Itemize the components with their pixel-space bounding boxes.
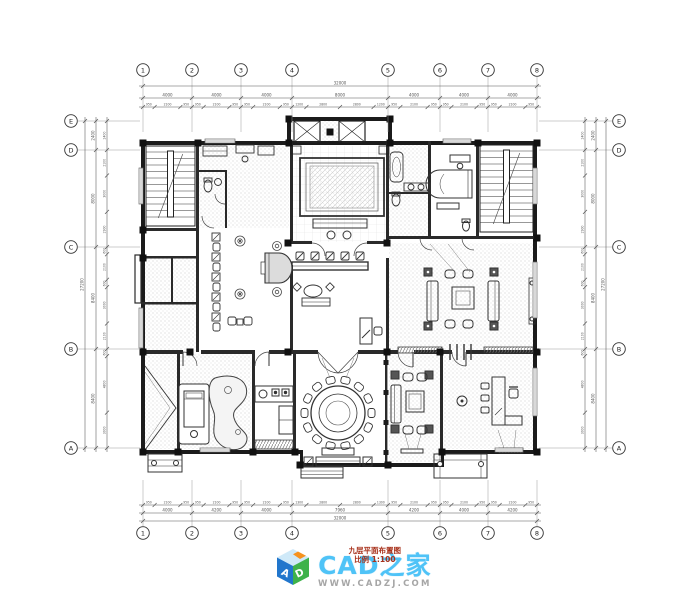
dim-text: 3000 bbox=[102, 301, 106, 309]
grid-bubble-label: D bbox=[616, 146, 621, 154]
cadzj-logo[interactable]: A D 九层平面布置图 比例 1:100 CAD之家 WWW.CADZJ.COM bbox=[274, 547, 432, 589]
dim-text: 950 bbox=[479, 102, 485, 106]
column bbox=[387, 140, 394, 147]
dim-text: 2100 bbox=[580, 159, 584, 167]
dim-text: 2100 bbox=[164, 500, 172, 504]
dim-text: 4000 bbox=[162, 507, 173, 512]
dim-text: 950 bbox=[232, 500, 238, 504]
dim-text: 950 bbox=[283, 102, 289, 106]
kitchen bbox=[255, 386, 293, 449]
banquet-chair bbox=[301, 409, 308, 418]
dim-text: 4000 bbox=[261, 92, 272, 97]
column bbox=[187, 349, 194, 356]
massage-room bbox=[179, 384, 209, 444]
dim-text: 600 bbox=[102, 248, 106, 254]
dim-text: 950 bbox=[443, 102, 449, 106]
grid-bubble-label: 8 bbox=[535, 66, 539, 74]
dining-pair-bottom bbox=[228, 317, 252, 325]
dim-text: 8400 bbox=[590, 393, 595, 404]
dim-text: 2100 bbox=[509, 102, 517, 106]
glass-partition bbox=[384, 353, 389, 463]
dim-text: 950 bbox=[244, 102, 250, 106]
column bbox=[534, 449, 541, 456]
dim-text: 4000 bbox=[261, 507, 272, 512]
column bbox=[297, 462, 304, 469]
dim-text: 2100 bbox=[410, 102, 418, 106]
dim-text: 4000 bbox=[507, 92, 518, 97]
column bbox=[534, 140, 541, 147]
dim-text: 3000 bbox=[580, 190, 584, 198]
website-url: WWW.CADZJ.COM bbox=[318, 579, 432, 589]
column bbox=[140, 349, 147, 356]
grid-bubble-label: E bbox=[69, 117, 73, 125]
dim-text: 8400 bbox=[590, 292, 595, 303]
grid-bubble-label: 1 bbox=[141, 66, 145, 74]
dim-text: 4000 bbox=[211, 92, 222, 97]
hall-rug bbox=[300, 158, 384, 216]
dim-text: 950 bbox=[491, 500, 497, 504]
dim-text: 2100 bbox=[580, 332, 584, 340]
banquet-chair bbox=[303, 393, 313, 404]
dim-text: 27200 bbox=[600, 278, 605, 291]
grid-bubble-label: 1 bbox=[141, 529, 145, 537]
dim-text: 2800 bbox=[319, 102, 327, 106]
column bbox=[384, 349, 391, 356]
column bbox=[140, 449, 147, 456]
window bbox=[495, 448, 523, 452]
banquet-chair bbox=[363, 393, 373, 404]
column bbox=[385, 462, 392, 469]
column bbox=[439, 449, 446, 456]
window bbox=[533, 168, 537, 204]
banquet-chair bbox=[325, 441, 335, 450]
grid-bubble-label: 5 bbox=[386, 66, 390, 74]
banquet-chair bbox=[325, 376, 335, 385]
dim-text: 950 bbox=[491, 102, 497, 106]
grid-bubble-label: B bbox=[69, 345, 73, 353]
banquet-chair bbox=[353, 434, 364, 445]
dim-text: 2100 bbox=[102, 332, 106, 340]
dim-text: 950 bbox=[183, 500, 189, 504]
grid-bubble-label: 3 bbox=[239, 66, 243, 74]
dim-text: 2100 bbox=[580, 263, 584, 271]
dim-text: 2400 bbox=[102, 132, 106, 140]
grid-bubble-label: 6 bbox=[438, 66, 442, 74]
dim-text: 3000 bbox=[102, 426, 106, 434]
column bbox=[140, 227, 147, 234]
dim-text: 4000 bbox=[162, 92, 173, 97]
dim-text: 600 bbox=[102, 350, 106, 356]
column bbox=[327, 129, 334, 136]
stair-rail bbox=[168, 151, 174, 217]
column bbox=[384, 240, 391, 247]
banquet-chair bbox=[303, 422, 313, 433]
column bbox=[475, 140, 482, 147]
dining-chair bbox=[213, 303, 220, 311]
window bbox=[533, 262, 537, 318]
dim-text: 8400 bbox=[90, 393, 95, 404]
column bbox=[285, 240, 292, 247]
window bbox=[139, 308, 143, 348]
column bbox=[292, 449, 299, 456]
dim-text: 3000 bbox=[580, 426, 584, 434]
dim-text: 950 bbox=[391, 102, 397, 106]
grid-bubble-label: 8 bbox=[535, 529, 539, 537]
dim-text: 32000 bbox=[334, 515, 347, 520]
grid-bubble-label: C bbox=[69, 243, 74, 251]
dim-text: 950 bbox=[528, 102, 534, 106]
window bbox=[205, 139, 235, 143]
dim-text: 950 bbox=[195, 500, 201, 504]
banquet-table bbox=[301, 358, 375, 450]
grid-bubble-label: 2 bbox=[190, 66, 194, 74]
banquet-chair bbox=[340, 376, 350, 385]
dim-text: 2800 bbox=[353, 500, 361, 504]
window bbox=[533, 368, 537, 416]
dim-text: 950 bbox=[283, 500, 289, 504]
dim-text: 600 bbox=[580, 248, 584, 254]
grand-piano bbox=[261, 253, 292, 283]
dim-text: 950 bbox=[146, 102, 152, 106]
dim-text: 2400 bbox=[580, 132, 584, 140]
dim-text: 27200 bbox=[79, 278, 84, 291]
grid-bubble-label: A bbox=[617, 444, 622, 452]
dim-text: 950 bbox=[195, 102, 201, 106]
banquet-chair bbox=[311, 381, 322, 392]
dim-text: 4000 bbox=[409, 92, 420, 97]
dining-chair bbox=[213, 243, 220, 251]
dim-text: 7960 bbox=[335, 507, 346, 512]
dim-text: 950 bbox=[183, 102, 189, 106]
dim-text: 2100 bbox=[213, 102, 221, 106]
column bbox=[534, 235, 541, 242]
window bbox=[443, 139, 471, 143]
grid-bubble-label: 4 bbox=[290, 66, 294, 74]
reception-area bbox=[292, 252, 368, 306]
grid-bubble-label: 7 bbox=[486, 529, 490, 537]
column bbox=[387, 116, 394, 123]
dim-text: 2100 bbox=[263, 102, 271, 106]
dim-text: 1200 bbox=[295, 102, 303, 106]
drawing-canvas: 1234567812345678EDCBAEDCBA 3200040004000… bbox=[0, 0, 675, 591]
dim-text: 950 bbox=[479, 500, 485, 504]
dim-text: 950 bbox=[443, 500, 449, 504]
dim-text: 950 bbox=[528, 500, 534, 504]
dim-text: 2800 bbox=[353, 102, 361, 106]
dim-text: 2900 bbox=[580, 225, 584, 233]
dim-text: 2100 bbox=[509, 500, 517, 504]
dim-text: 8000 bbox=[90, 193, 95, 204]
banquet-chair bbox=[340, 441, 350, 450]
dining-chair bbox=[213, 263, 220, 271]
column bbox=[195, 140, 202, 147]
dim-text: 950 bbox=[244, 500, 250, 504]
dim-text: 2100 bbox=[460, 102, 468, 106]
dim-text: 8000 bbox=[335, 92, 346, 97]
dim-text: 8400 bbox=[90, 292, 95, 303]
dim-text: 8000 bbox=[590, 193, 595, 204]
column bbox=[286, 140, 293, 147]
dim-text: 4800 bbox=[580, 380, 584, 388]
dim-text: 3000 bbox=[580, 301, 584, 309]
grid-bubble-label: 3 bbox=[239, 529, 243, 537]
grid-bubble-label: E bbox=[617, 117, 621, 125]
dim-text: 950 bbox=[391, 500, 397, 504]
column bbox=[286, 116, 293, 123]
column bbox=[437, 349, 444, 356]
banquet-chair bbox=[368, 409, 375, 418]
stair-left bbox=[146, 146, 195, 226]
column bbox=[140, 140, 147, 147]
column bbox=[250, 449, 257, 456]
grid-bubble-label: D bbox=[68, 146, 73, 154]
grid-bubble-label: C bbox=[617, 243, 622, 251]
grid-bubble-label: 6 bbox=[438, 529, 442, 537]
dim-text: 2800 bbox=[319, 500, 327, 504]
dim-text: 2100 bbox=[410, 500, 418, 504]
cadzj-cube-icon: A D bbox=[274, 547, 312, 587]
dim-text: 600 bbox=[102, 280, 106, 286]
bedroom-top-right bbox=[426, 155, 472, 231]
dining-chair bbox=[213, 283, 220, 291]
dim-text: 600 bbox=[580, 280, 584, 286]
floor-plan-svg: 1234567812345678EDCBAEDCBA 3200040004000… bbox=[0, 0, 675, 591]
grid-bubble-label: 7 bbox=[486, 66, 490, 74]
dim-text: 4200 bbox=[507, 507, 518, 512]
dim-text: 2100 bbox=[102, 263, 106, 271]
grid-bubble-label: 5 bbox=[386, 529, 390, 537]
dim-text: 3000 bbox=[102, 190, 106, 198]
dim-text: 4200 bbox=[409, 507, 420, 512]
dim-text: 32000 bbox=[334, 80, 347, 85]
stair-rail bbox=[504, 150, 510, 223]
column bbox=[175, 449, 182, 456]
grid-bubble-label: 4 bbox=[290, 529, 294, 537]
dim-text: 2100 bbox=[263, 500, 271, 504]
dim-text: 950 bbox=[431, 102, 437, 106]
drawing-title: 九层平面布置图 bbox=[349, 546, 402, 555]
dim-text: 2400 bbox=[590, 130, 595, 141]
dim-text: 4000 bbox=[459, 507, 470, 512]
grid-bubble-label: B bbox=[617, 345, 621, 353]
dim-text: 950 bbox=[146, 500, 152, 504]
banquet-chair bbox=[353, 381, 364, 392]
dim-text: 1300 bbox=[377, 500, 385, 504]
dim-text: 2100 bbox=[460, 500, 468, 504]
dim-text: 950 bbox=[431, 500, 437, 504]
stair-right bbox=[480, 145, 533, 232]
grid-bubble-label: A bbox=[69, 444, 74, 452]
banquet-chair bbox=[311, 434, 322, 445]
dim-text: 2100 bbox=[213, 500, 221, 504]
dim-text: 2100 bbox=[102, 159, 106, 167]
dim-text: 2100 bbox=[164, 102, 172, 106]
banquet-chair bbox=[363, 422, 373, 433]
dim-text: 4800 bbox=[102, 380, 106, 388]
dining-chair bbox=[213, 323, 220, 331]
grid-bubble-label: 2 bbox=[190, 529, 194, 537]
dim-text: 2400 bbox=[90, 130, 95, 141]
dim-text: 4000 bbox=[459, 92, 470, 97]
column bbox=[285, 349, 292, 356]
column bbox=[140, 255, 147, 262]
column bbox=[534, 349, 541, 356]
dim-text: 600 bbox=[580, 350, 584, 356]
dim-text: 1300 bbox=[295, 500, 303, 504]
corridor-desk bbox=[360, 318, 382, 344]
dim-text: 1200 bbox=[377, 102, 385, 106]
window bbox=[200, 448, 230, 452]
dining-tables-row bbox=[212, 233, 220, 331]
dim-text: 4200 bbox=[211, 507, 222, 512]
drawing-scale: 比例 1:100 bbox=[349, 555, 402, 564]
dim-text: 950 bbox=[232, 102, 238, 106]
drawing-title-stamp: 九层平面布置图 比例 1:100 bbox=[349, 546, 402, 564]
dim-text: 2900 bbox=[102, 225, 106, 233]
window bbox=[139, 168, 143, 204]
